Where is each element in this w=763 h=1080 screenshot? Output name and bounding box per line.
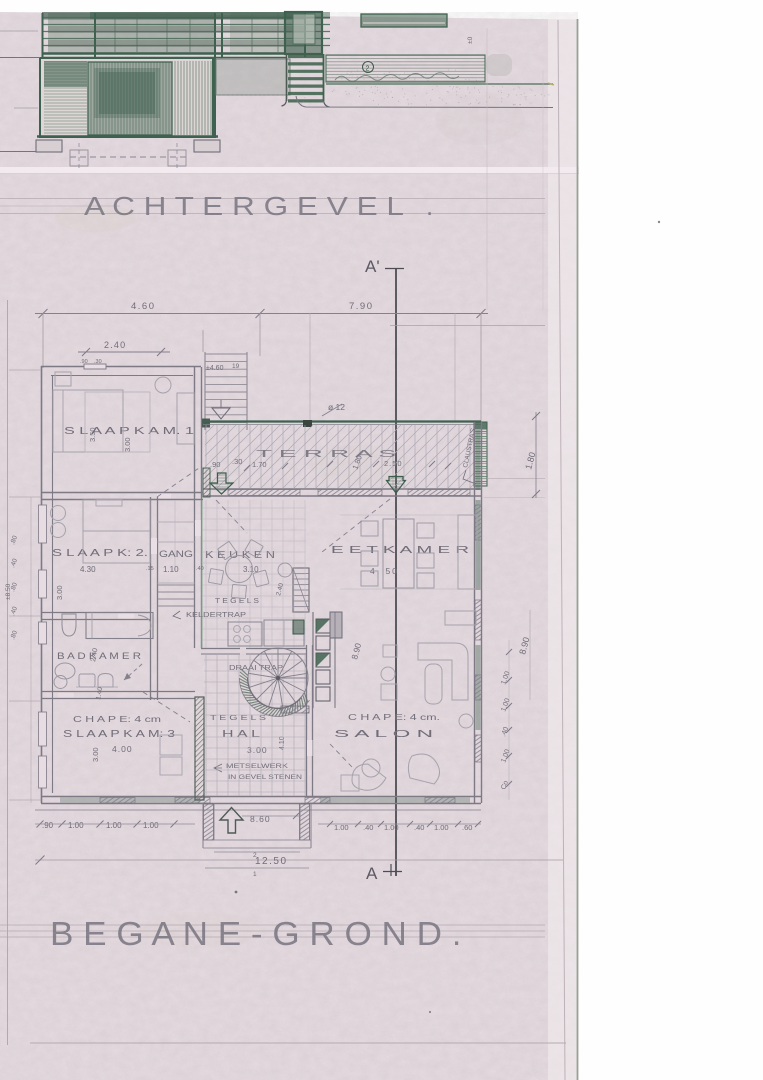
svg-text:3.00: 3.00 bbox=[55, 585, 64, 600]
svg-text:T E R R A S: T E R R A S bbox=[256, 448, 396, 460]
svg-text:2: 2 bbox=[366, 66, 370, 73]
svg-text:.90: .90 bbox=[42, 821, 54, 830]
svg-text:2.40: 2.40 bbox=[104, 340, 126, 350]
svg-text:S L A A P K A M: 3: S L A A P K A M: 3 bbox=[63, 729, 176, 740]
svg-text:±8.50: ±8.50 bbox=[5, 583, 12, 600]
svg-text:.: . bbox=[452, 915, 461, 952]
svg-text:T E G E L S: T E G E L S bbox=[215, 598, 259, 605]
svg-text:1.00: 1.00 bbox=[106, 821, 122, 830]
svg-text:±4.60: ±4.60 bbox=[206, 365, 224, 372]
svg-text:3.00: 3.00 bbox=[123, 437, 132, 452]
svg-text:4.00: 4.00 bbox=[112, 744, 133, 754]
svg-text:8.60: 8.60 bbox=[250, 814, 271, 824]
svg-text:S A L O N: S A L O N bbox=[334, 728, 433, 740]
svg-text:1.00: 1.00 bbox=[143, 821, 159, 830]
svg-text:A': A' bbox=[365, 257, 380, 276]
svg-text:.60: .60 bbox=[462, 823, 472, 832]
svg-text:4.60: 4.60 bbox=[131, 301, 156, 312]
svg-text:B A D K A M E R: B A D K A M E R bbox=[57, 651, 141, 662]
svg-text:2: 2 bbox=[253, 852, 257, 859]
svg-text:1.00: 1.00 bbox=[68, 821, 84, 830]
svg-text:B E G A N E - G R O N D: B E G A N E - G R O N D bbox=[50, 915, 442, 952]
svg-text:1: 1 bbox=[253, 871, 257, 878]
svg-text:2.50: 2.50 bbox=[384, 459, 403, 468]
svg-text:3.00: 3.00 bbox=[91, 747, 100, 762]
svg-text:C H A P E: 4 cm.: C H A P E: 4 cm. bbox=[348, 712, 440, 722]
svg-text:.40: .40 bbox=[414, 823, 424, 832]
svg-text:METSELWERK: METSELWERK bbox=[226, 763, 289, 770]
svg-text:19: 19 bbox=[232, 363, 240, 370]
svg-text:S L A A P K A M. 1: S L A A P K A M. 1 bbox=[64, 426, 195, 437]
svg-text:.40: .40 bbox=[196, 566, 204, 572]
svg-text:7.90: 7.90 bbox=[349, 301, 374, 312]
svg-text:±0: ±0 bbox=[467, 36, 474, 44]
svg-text:A C H T E R G E V E L: A C H T E R G E V E L bbox=[84, 191, 404, 221]
svg-text:1.70: 1.70 bbox=[252, 460, 267, 469]
svg-text:3.50: 3.50 bbox=[88, 427, 97, 442]
svg-text:12.50: 12.50 bbox=[255, 856, 288, 867]
svg-text:4.30: 4.30 bbox=[80, 565, 96, 574]
svg-text:C H A P E: 4 cm: C H A P E: 4 cm bbox=[73, 714, 161, 724]
svg-text:1.00: 1.00 bbox=[384, 823, 399, 832]
svg-text:1.00: 1.00 bbox=[434, 823, 449, 832]
svg-text:1.00: 1.00 bbox=[334, 823, 349, 832]
svg-text:.40: .40 bbox=[363, 823, 373, 832]
svg-text:GANG: GANG bbox=[159, 549, 193, 560]
svg-text:S L A A P K: 2.: S L A A P K: 2. bbox=[52, 548, 148, 559]
svg-text:1.10: 1.10 bbox=[163, 565, 179, 574]
svg-text:.15: .15 bbox=[146, 566, 154, 572]
svg-text:.: . bbox=[426, 191, 433, 221]
svg-text:T E G E L S: T E G E L S bbox=[210, 713, 266, 722]
svg-text:A: A bbox=[366, 864, 378, 883]
svg-text:.30: .30 bbox=[232, 457, 242, 466]
svg-text:.90: .90 bbox=[210, 460, 220, 469]
svg-text:E E T K A M E R: E E T K A M E R bbox=[331, 544, 470, 556]
